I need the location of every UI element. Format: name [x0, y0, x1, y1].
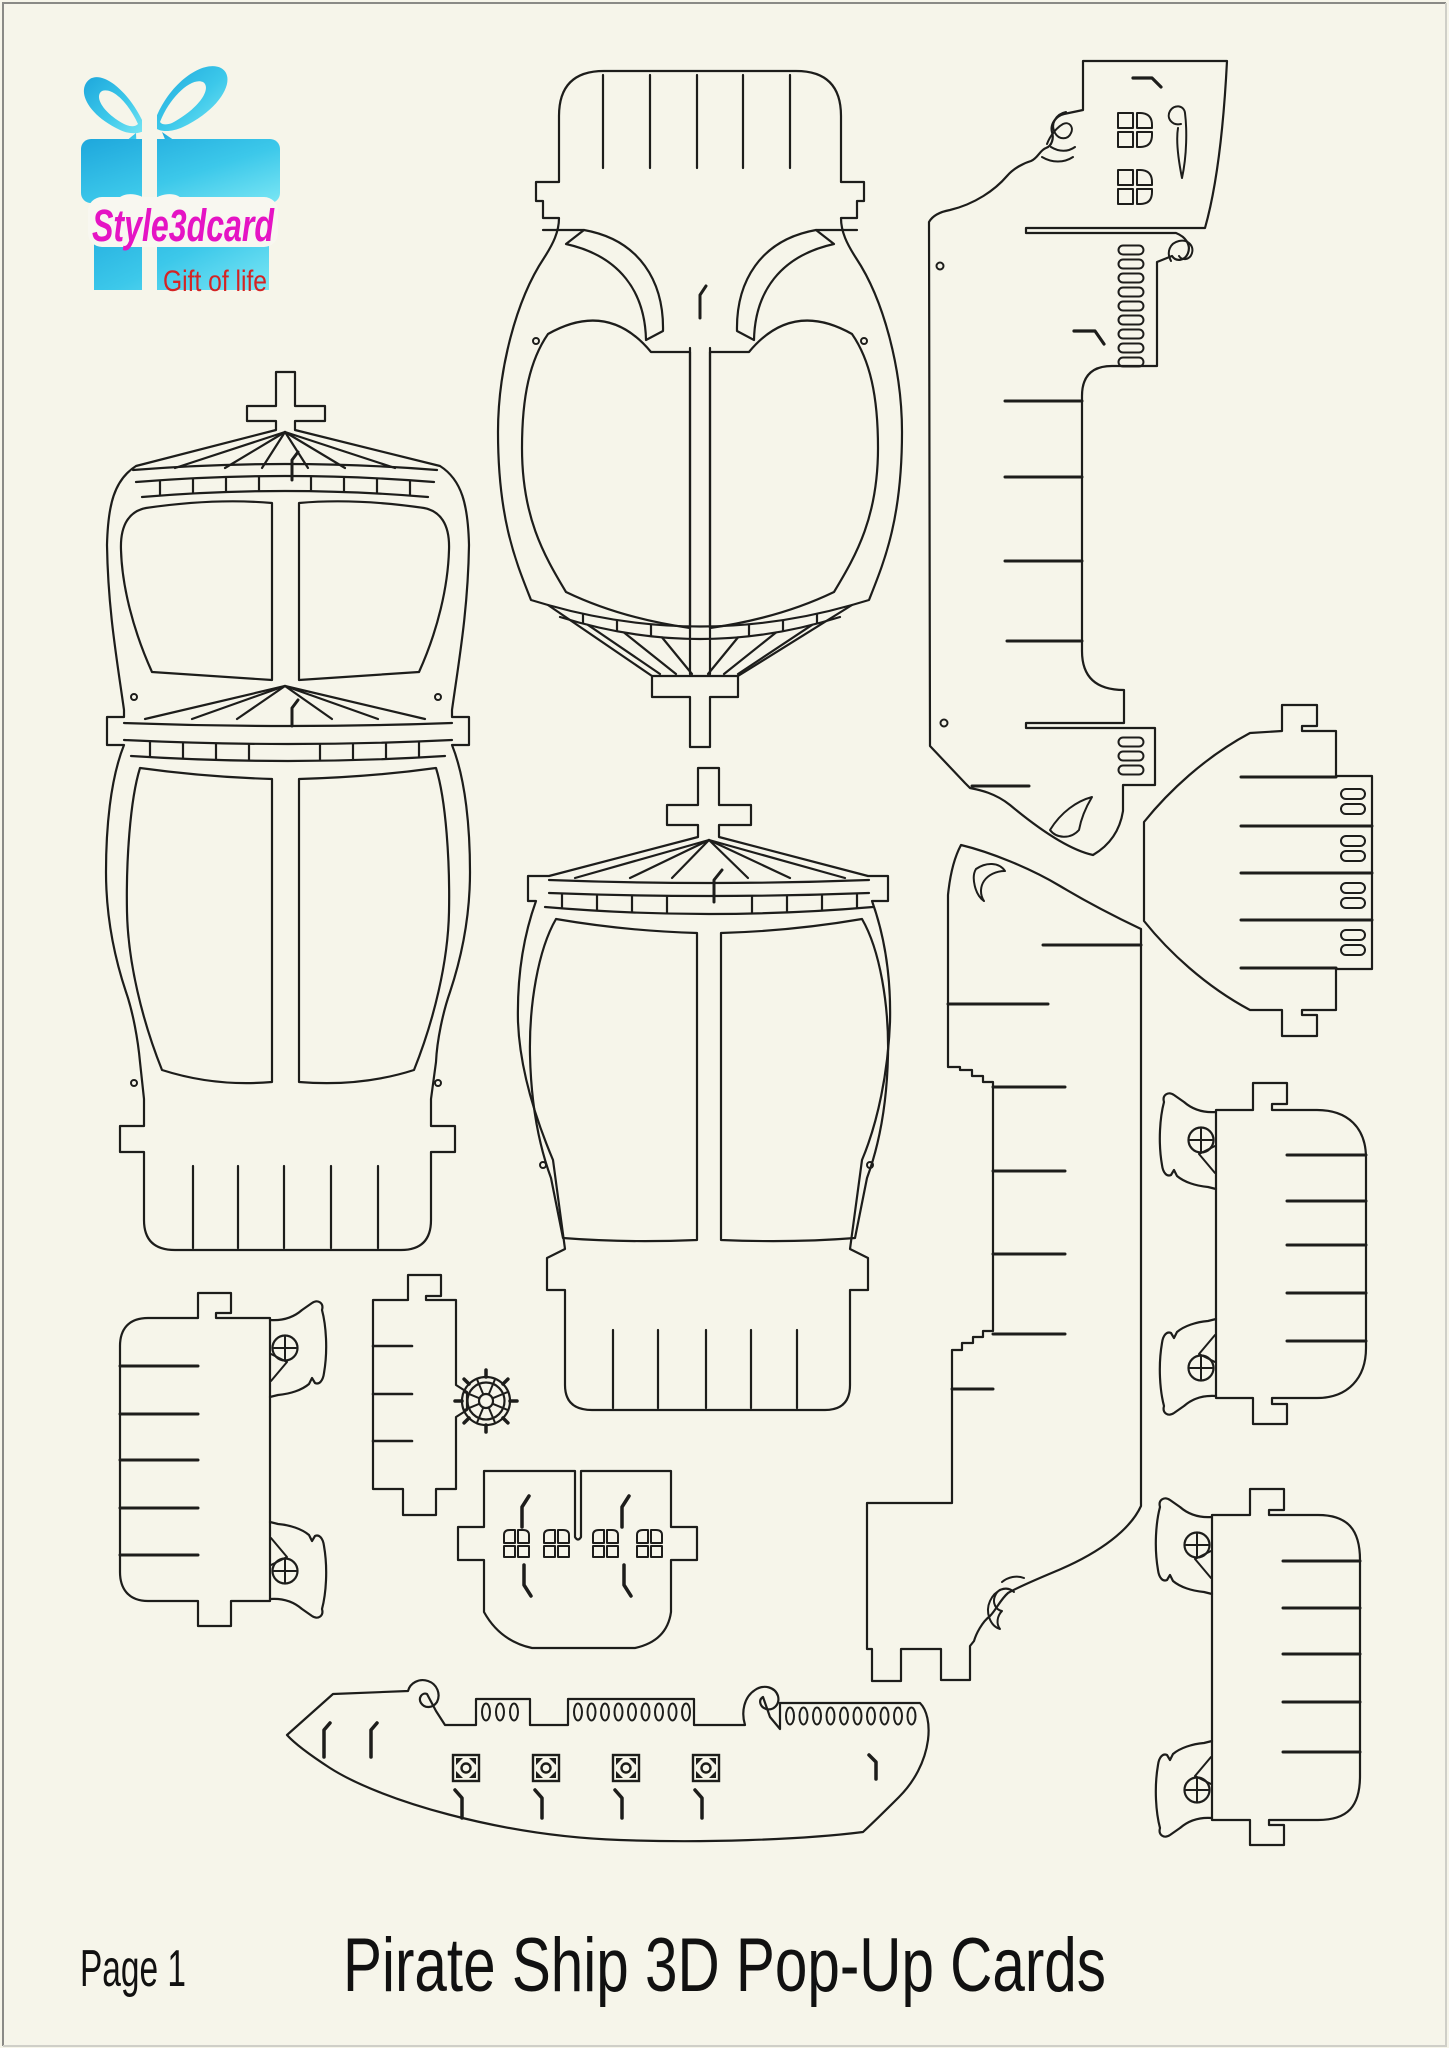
- svg-text:Page 1: Page 1: [80, 1940, 186, 1998]
- svg-text:Gift of life: Gift of life: [163, 265, 267, 298]
- svg-text:Pirate Ship 3D Pop-Up Cards: Pirate Ship 3D Pop-Up Cards: [343, 1923, 1106, 2008]
- svg-text:Style3dcard: Style3dcard: [92, 200, 275, 251]
